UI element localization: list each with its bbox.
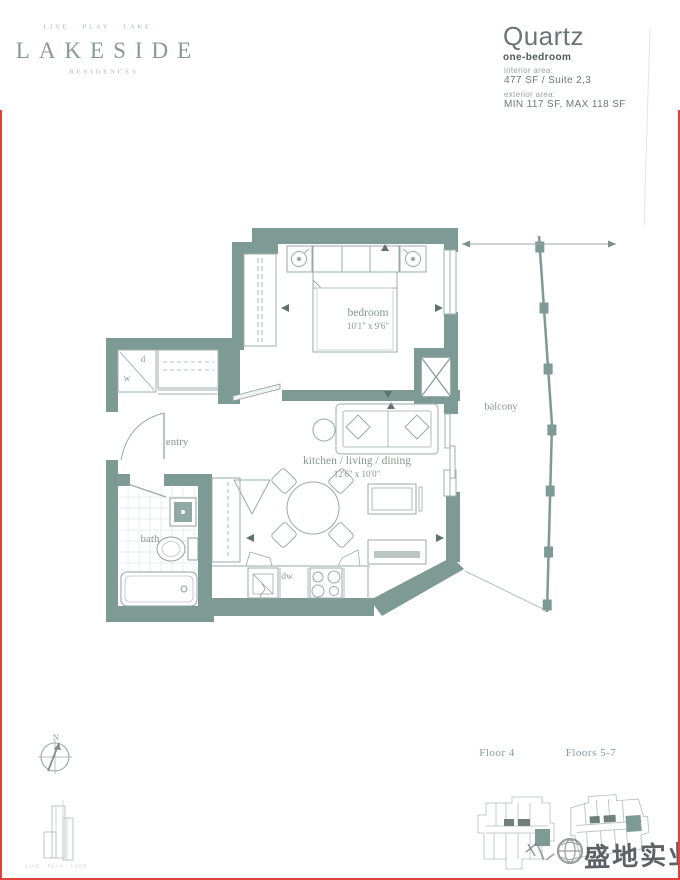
tv xyxy=(419,487,422,511)
kitchen-sink xyxy=(248,568,278,598)
bedroom-sliding-door xyxy=(233,384,280,401)
sofa-pillow xyxy=(405,415,429,439)
bedroom-label: bedroom xyxy=(348,307,389,319)
living-furniture xyxy=(271,404,438,564)
shaft-box xyxy=(421,357,451,397)
entry-closet xyxy=(158,350,218,394)
brand-name: LAKESIDE xyxy=(16,38,200,64)
sofa xyxy=(336,404,438,454)
interior-area-value: 477 SF / Suite 2,3 xyxy=(504,75,591,86)
red-border-left xyxy=(0,110,2,880)
dryer-label: d xyxy=(141,354,146,364)
balcony-label: balcony xyxy=(484,402,517,413)
side-table xyxy=(313,419,335,441)
compass-north-label: N xyxy=(53,732,59,742)
brand-building-icon xyxy=(44,800,73,860)
sofa-pillow xyxy=(346,415,370,439)
dishwasher-label: dw xyxy=(281,572,293,582)
bath-label: bath xyxy=(141,533,160,545)
floorplan-page: LIVE . PLAY . LAKE . LAKESIDE RESIDENCES… xyxy=(0,0,680,880)
kitchen-counter-vertical xyxy=(212,478,240,562)
brand-tagline: LIVE . PLAY . LAKE . xyxy=(43,24,160,31)
keyplan-floor4-label: Floor 4 xyxy=(479,747,515,759)
compass-icon xyxy=(38,740,72,774)
exterior-area-label: exterior area: xyxy=(504,90,555,99)
unit-name: Quartz xyxy=(503,21,584,52)
entry-label: entry xyxy=(166,436,189,448)
bath-door xyxy=(128,484,166,497)
keyplan-highlight-unit xyxy=(535,829,550,846)
unit-type: one-bedroom xyxy=(503,52,571,63)
bathtub xyxy=(121,572,197,606)
balcony-railing xyxy=(465,236,556,612)
toilet xyxy=(157,537,185,561)
tv-console xyxy=(368,484,416,514)
living-dims: 12'6" x 10'0" xyxy=(334,469,381,479)
brand-residences: RESIDENCES xyxy=(69,69,138,76)
washer-label: w xyxy=(124,373,131,383)
living-label: kitchen / living / dining xyxy=(303,455,411,467)
kitchen-fixtures xyxy=(212,478,370,601)
dining-table xyxy=(287,482,339,534)
footer-tagline: LIVE . PLAY . LAKE . xyxy=(25,865,92,870)
toilet-tank xyxy=(188,538,198,560)
entry-door xyxy=(121,413,164,460)
balcony-door-panel xyxy=(445,414,450,448)
keyplan-highlight-unit xyxy=(626,815,642,832)
exterior-area-value: MIN 117 SF, MAX 118 SF xyxy=(504,99,626,110)
bedroom-dims: 10'1" x 9'6" xyxy=(347,321,389,331)
bedroom-furniture xyxy=(287,246,426,352)
watermark-text: 盛地实业 xyxy=(584,835,680,875)
page-crease xyxy=(644,28,650,226)
balcony-door-panel xyxy=(450,446,455,478)
laundry-closet xyxy=(118,350,156,392)
keyplan-floors5-7-label: Floors 5-7 xyxy=(566,747,617,759)
bedroom-closet xyxy=(244,254,276,346)
interior-area-label: interior area: xyxy=(504,66,553,75)
